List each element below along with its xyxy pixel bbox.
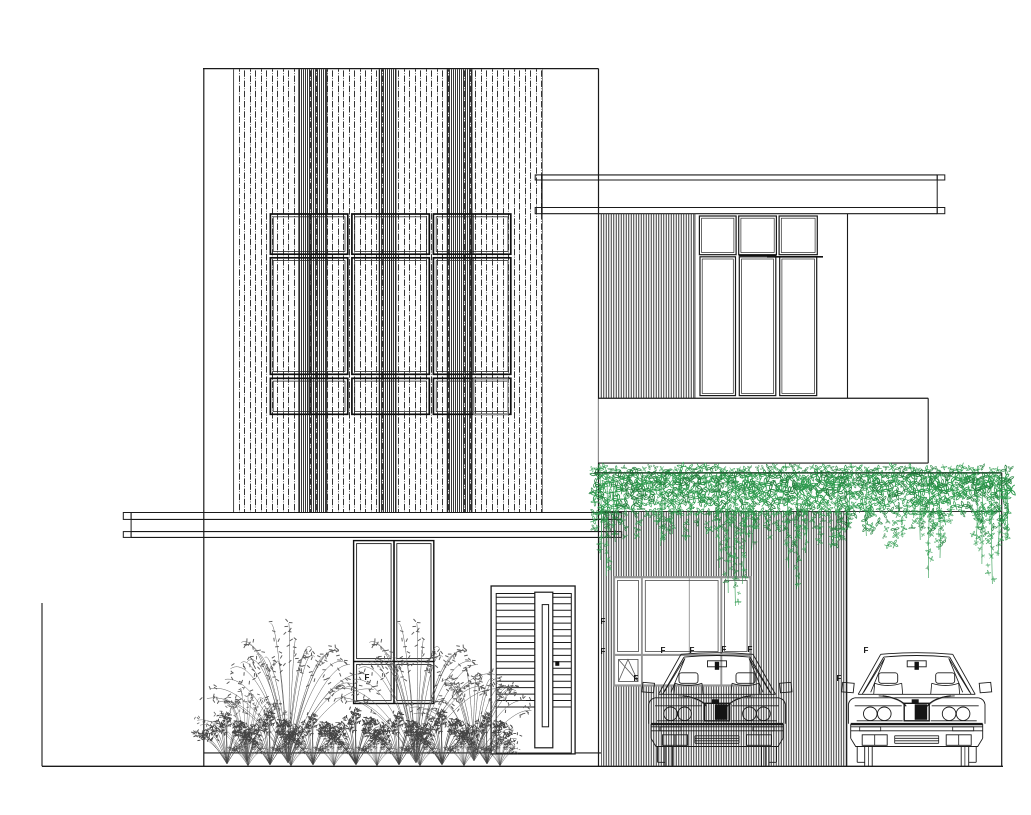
svg-text:F: F [601,647,606,656]
svg-text:F: F [748,645,753,654]
svg-text:F: F [601,617,606,626]
svg-text:F: F [634,674,639,683]
svg-text:F: F [837,674,842,683]
svg-text:F: F [365,673,370,682]
svg-text:F: F [661,646,666,655]
svg-text:F: F [864,646,869,655]
